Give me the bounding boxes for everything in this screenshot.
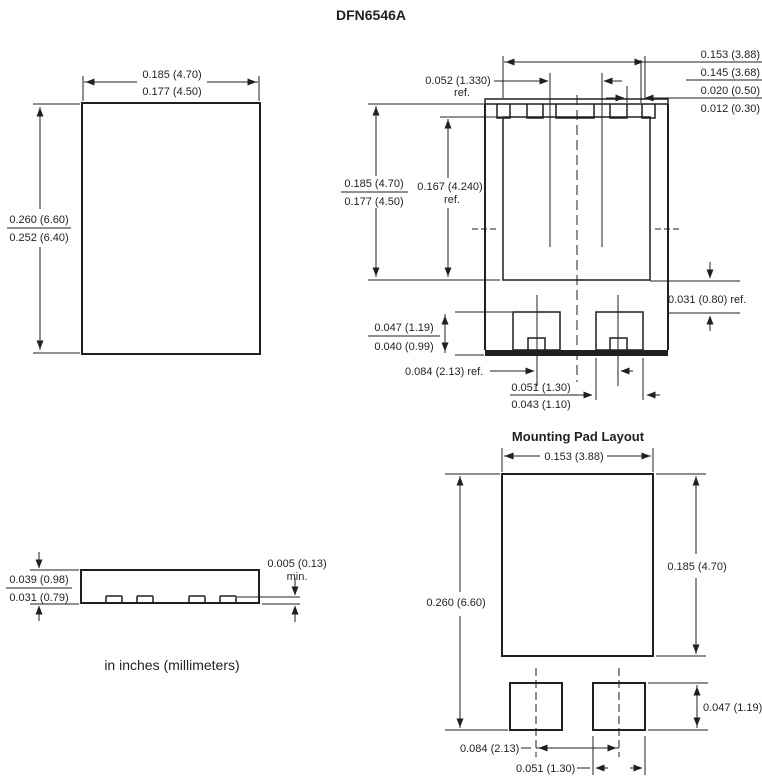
flange-length-max-label: 0.185 (4.70) [344,178,403,190]
pin-pitch-ref-label: ref. [454,87,470,99]
pin-pitch-label: 0.052 (1.330) [425,75,490,87]
pin-notch [610,104,627,118]
pin-width-min-label: 0.012 (0.30) [701,103,760,115]
tab-right [596,312,643,350]
tab-width-min-label: 0.043 (1.10) [511,399,570,411]
pin-foot [137,596,153,603]
side-view: 0.005 (0.13) min. 0.039 (0.98) 0.031 (0.… [6,552,327,673]
pin-foot [220,596,236,603]
tab-length-max-label: 0.047 (1.19) [374,322,433,334]
top-view-height-max-label: 0.260 (6.60) [9,214,68,226]
corner-pin-right [642,104,655,118]
pin-foot [189,596,205,603]
tab-width-max-label: 0.051 (1.30) [511,382,570,394]
top-view-body [82,103,260,354]
tab-height-label: 0.047 (1.19) [703,702,762,714]
corner-pin-left [497,104,510,118]
tab-pitch-label: 0.084 (2.13) ref. [405,366,483,378]
pad-width-label: 0.153 (3.88) [544,451,603,463]
pin-foot [106,596,122,603]
pad-width-max-label: 0.153 (3.88) [701,49,760,61]
pad-tab-width-label: 0.051 (1.30) [516,763,575,775]
center-pin-notch [556,104,594,118]
pad-layout-title: Mounting Pad Layout [512,429,645,444]
standoff-label: 0.005 (0.13) [267,558,326,570]
pin-notch [527,104,543,118]
pad-height-label: 0.185 (4.70) [667,561,726,573]
top-view-width-max-label: 0.185 (4.70) [142,69,201,81]
package-outline-drawing: DFN6546A 0.185 (4.70) 0.177 (4.50) 0.260… [0,0,762,780]
main-pad [502,474,653,656]
pad-tab-pitch-label: 0.084 (2.13) [460,743,519,755]
pad-width-min-label: 0.145 (3.68) [701,67,760,79]
top-view-height-min-label: 0.252 (6.40) [9,232,68,244]
package-drawing-page: DFN6546A 0.185 (4.70) 0.177 (4.50) 0.260… [0,0,762,780]
side-view-body [81,570,259,603]
side-height-max-label: 0.039 (0.98) [9,574,68,586]
standoff-min-label: min. [287,571,308,583]
mounting-pad-layout: Mounting Pad Layout 0.153 (3.88) 0.185 (… [426,429,762,775]
page-title: DFN6546A [336,7,406,23]
pad-length-label: 0.167 (4.240) [417,181,482,193]
pad-length-ref-label: ref. [444,194,460,206]
overall-height-label: 0.260 (6.60) [426,597,485,609]
tab-length-min-label: 0.040 (0.99) [374,341,433,353]
top-view: 0.185 (4.70) 0.177 (4.50) 0.260 (6.60) 0… [7,69,260,354]
tab-gap-label: 0.031 (0.80) ref. [668,294,746,306]
flange-length-min-label: 0.177 (4.50) [344,196,403,208]
units-caption: in inches (millimeters) [104,657,239,673]
side-height-min-label: 0.031 (0.79) [9,592,68,604]
top-view-width-min-label: 0.177 (4.50) [142,86,201,98]
bottom-view: 0.153 (3.88) 0.145 (3.68) 0.020 (0.50) 0… [341,49,762,411]
pin-width-max-label: 0.020 (0.50) [701,85,760,97]
